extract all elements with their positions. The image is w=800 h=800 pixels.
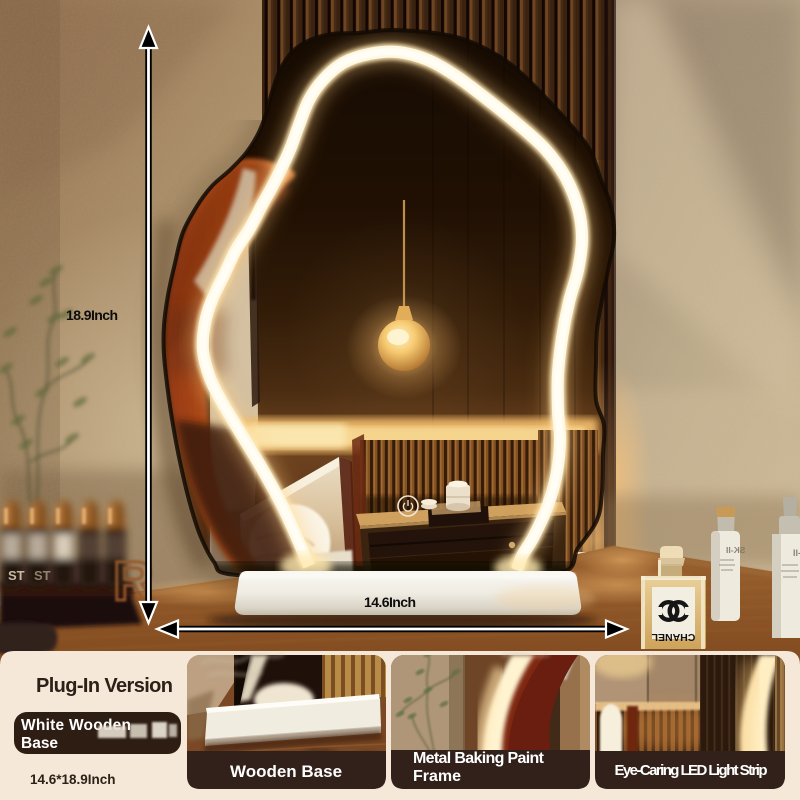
svg-text:14.6Inch: 14.6Inch <box>364 594 416 610</box>
svg-text:Base: Base <box>21 735 58 752</box>
svg-text:Eye-Caring LED Light Strip: Eye-Caring LED Light Strip <box>615 762 768 779</box>
svg-text:18.9Inch: 18.9Inch <box>66 307 118 323</box>
svg-text:SK-II: SK-II <box>793 548 800 558</box>
svg-text:Frame: Frame <box>413 768 461 785</box>
svg-text:CHANEL: CHANEL <box>651 631 695 643</box>
svg-text:ST: ST <box>34 568 51 583</box>
svg-text:ST: ST <box>8 568 25 583</box>
svg-text:Wooden Base: Wooden Base <box>230 762 342 781</box>
svg-text:Plug-In Version: Plug-In Version <box>36 675 173 697</box>
svg-text:14.6*18.9Inch: 14.6*18.9Inch <box>30 772 116 787</box>
svg-text:SK-II: SK-II <box>726 545 745 555</box>
svg-text:Metal Baking Paint: Metal Baking Paint <box>413 750 545 767</box>
